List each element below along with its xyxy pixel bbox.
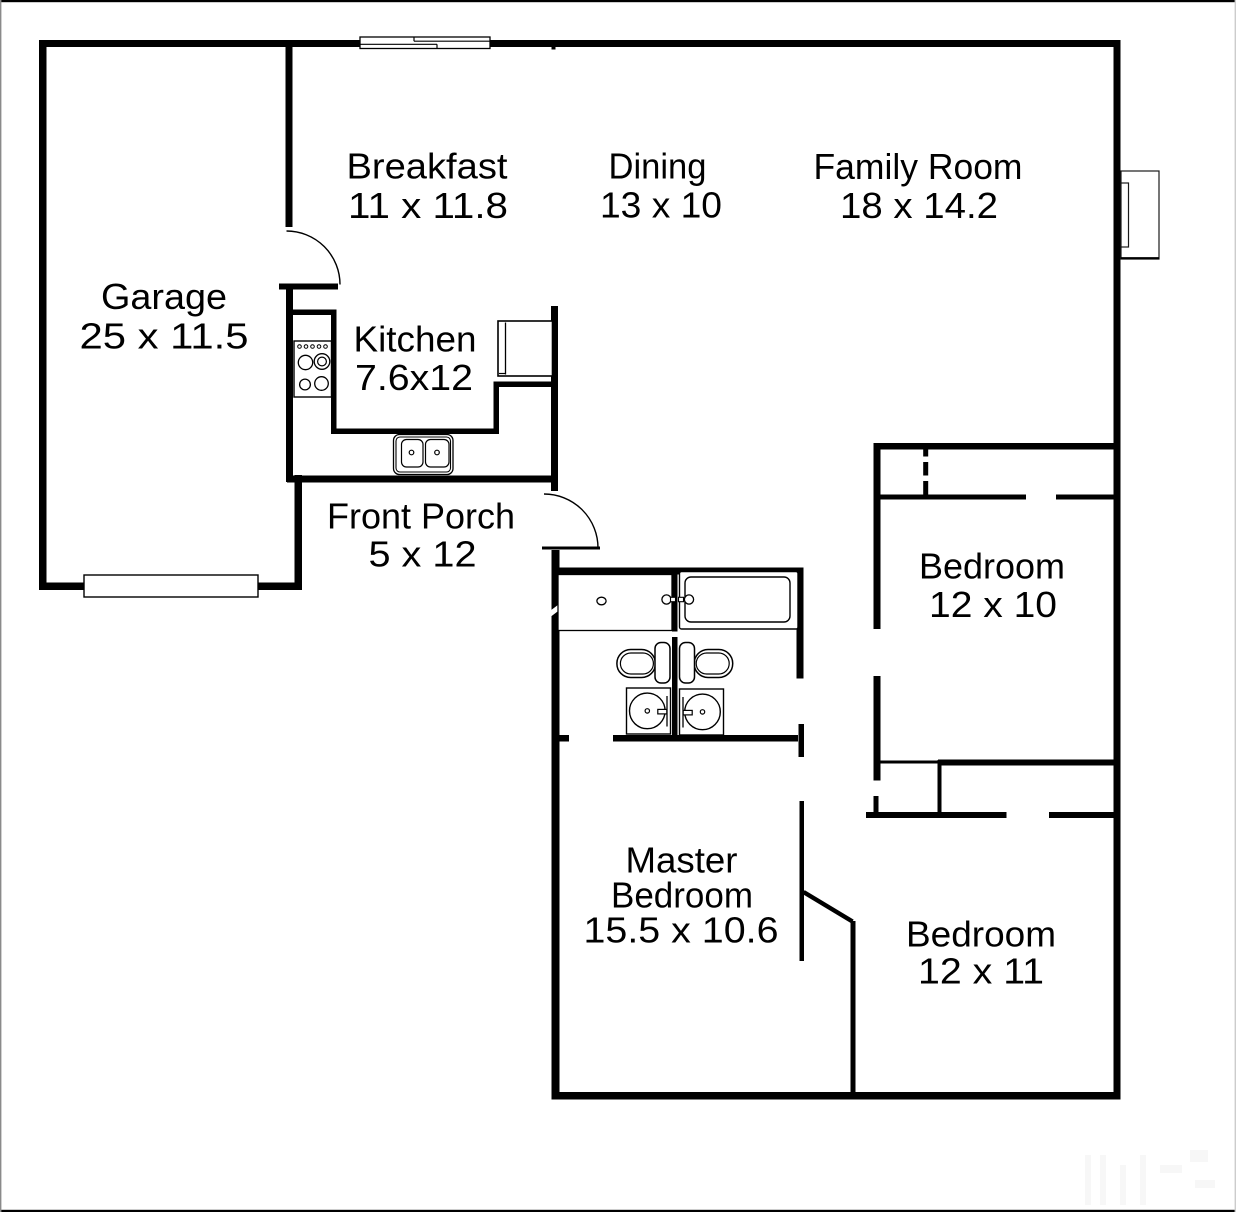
svg-text:13 x 10: 13 x 10 (600, 185, 722, 226)
svg-text:7.6x12: 7.6x12 (355, 357, 473, 398)
svg-text:Family Room: Family Room (814, 146, 1023, 187)
svg-text:12 x 11: 12 x 11 (918, 951, 1044, 992)
svg-text:11 x 11.8: 11 x 11.8 (348, 185, 508, 226)
svg-text:5 x 12: 5 x 12 (369, 534, 477, 575)
svg-text:25 x 11.5: 25 x 11.5 (80, 316, 249, 357)
svg-text:18 x 14.2: 18 x 14.2 (840, 185, 998, 226)
svg-text:Bedroom: Bedroom (919, 546, 1065, 587)
svg-text:12 x 10: 12 x 10 (929, 584, 1057, 625)
svg-text:Garage: Garage (101, 276, 227, 317)
svg-text:15.5 x 10.6: 15.5 x 10.6 (584, 910, 779, 951)
svg-text:Kitchen: Kitchen (354, 319, 477, 360)
svg-text:Breakfast: Breakfast (347, 146, 508, 187)
svg-text:Bedroom: Bedroom (906, 914, 1056, 955)
svg-text:Dining: Dining (609, 146, 707, 187)
svg-text:Front Porch: Front Porch (327, 496, 515, 537)
